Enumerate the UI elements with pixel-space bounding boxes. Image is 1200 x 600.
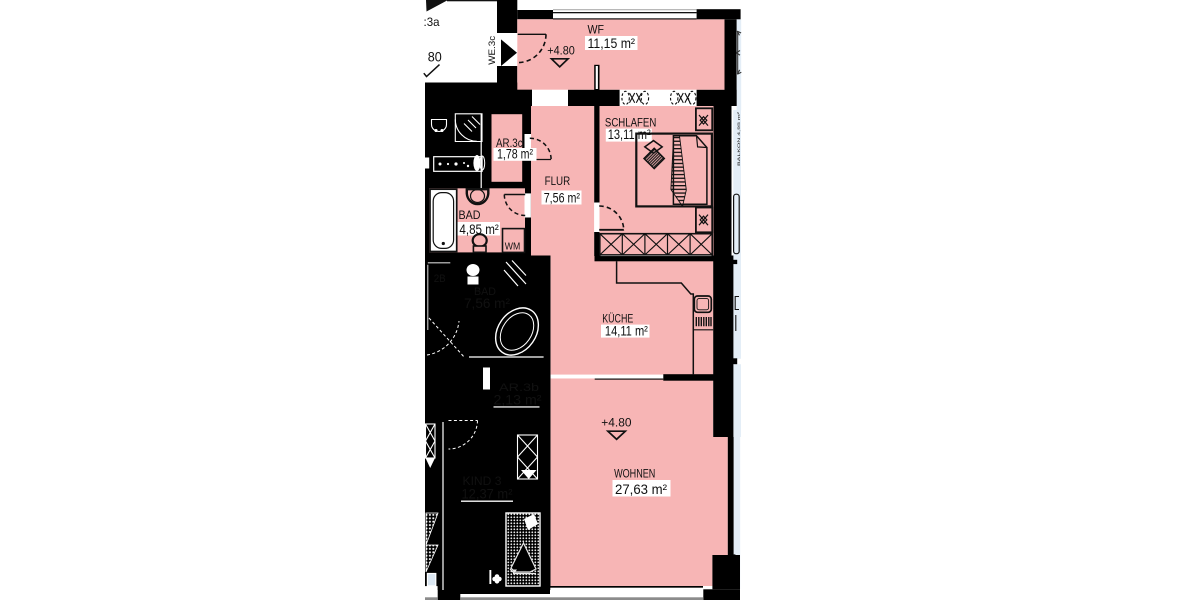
svg-text:WE.3c: WE.3c xyxy=(487,36,498,65)
svg-text:2,13 m²: 2,13 m² xyxy=(494,393,543,408)
svg-text:+4.80: +4.80 xyxy=(601,415,632,429)
svg-text:12,37 m²: 12,37 m² xyxy=(462,487,513,502)
svg-text::3a: :3a xyxy=(424,15,440,29)
svg-text:1,78 m²: 1,78 m² xyxy=(497,146,533,162)
svg-text:FLUR: FLUR xyxy=(545,176,571,188)
svg-text:7,56 m²: 7,56 m² xyxy=(464,296,510,311)
svg-text:BALKON 4,95 m²: BALKON 4,95 m² xyxy=(736,111,741,166)
svg-text:14,11 m²: 14,11 m² xyxy=(605,323,648,339)
svg-text:+4.80: +4.80 xyxy=(547,44,575,58)
svg-text:11,15 m²: 11,15 m² xyxy=(588,35,636,51)
svg-text:80: 80 xyxy=(428,49,442,65)
svg-text:7,56 m²: 7,56 m² xyxy=(544,189,581,205)
svg-text:27,63 m²: 27,63 m² xyxy=(615,481,667,497)
svg-text:WM: WM xyxy=(505,242,521,253)
svg-text:WOHNEN: WOHNEN xyxy=(614,469,655,481)
svg-text:2B: 2B xyxy=(434,273,446,285)
